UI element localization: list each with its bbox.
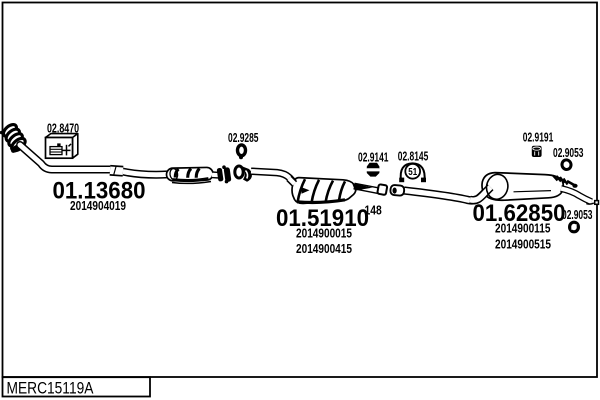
svg-text:51: 51 <box>408 166 417 177</box>
svg-text:2014900415: 2014900415 <box>296 243 353 256</box>
svg-text:148: 148 <box>365 204 383 217</box>
svg-text:02.9053: 02.9053 <box>553 146 584 160</box>
svg-text:02.9053: 02.9053 <box>562 208 593 222</box>
svg-text:2014900515: 2014900515 <box>495 239 552 252</box>
svg-text:02.9191: 02.9191 <box>523 131 554 145</box>
svg-text:2014904019: 2014904019 <box>70 200 126 213</box>
svg-text:MERC15119A: MERC15119A <box>7 379 95 397</box>
svg-text:2014900015: 2014900015 <box>296 228 353 241</box>
svg-text:2014900115: 2014900115 <box>495 222 551 235</box>
svg-text:02.9141: 02.9141 <box>358 151 389 165</box>
svg-text:02.9285: 02.9285 <box>228 131 259 145</box>
svg-text:02.8145: 02.8145 <box>398 150 429 164</box>
